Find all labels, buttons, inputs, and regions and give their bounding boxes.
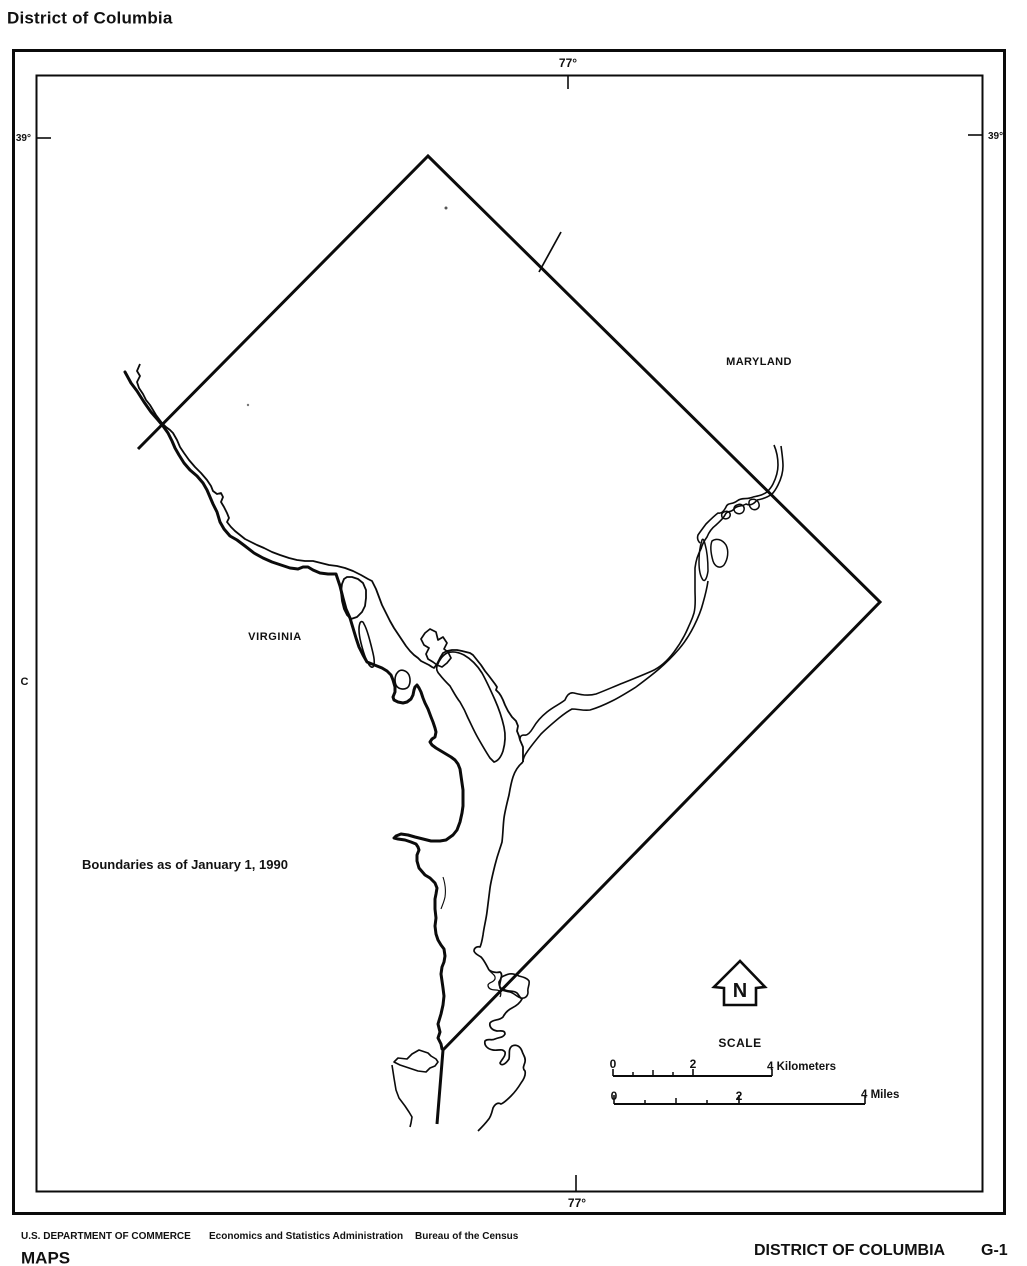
svg-text:0: 0 — [610, 1057, 617, 1071]
svg-text:39°: 39° — [988, 131, 1003, 142]
svg-text:0: 0 — [611, 1089, 618, 1103]
svg-text:39°: 39° — [16, 133, 31, 144]
svg-text:2: 2 — [690, 1057, 697, 1071]
svg-text:DISTRICT OF COLUMBIA: DISTRICT OF COLUMBIA — [754, 1242, 946, 1259]
svg-text:U.S. DEPARTMENT OF COMMERCE: U.S. DEPARTMENT OF COMMERCE — [21, 1231, 191, 1242]
svg-text:77°: 77° — [568, 1196, 586, 1210]
svg-text:VIRGINIA: VIRGINIA — [248, 631, 302, 643]
svg-text:C: C — [21, 676, 29, 688]
svg-text:Economics and Statistics Admin: Economics and Statistics Administration — [209, 1231, 403, 1242]
svg-text:Bureau of the Census: Bureau of the Census — [415, 1231, 519, 1242]
svg-text:N: N — [733, 980, 747, 1002]
svg-text:MARYLAND: MARYLAND — [726, 356, 792, 368]
svg-text:77°: 77° — [559, 56, 577, 70]
svg-text:4 Kilometers: 4 Kilometers — [767, 1061, 836, 1073]
svg-text:SCALE: SCALE — [718, 1036, 761, 1050]
svg-text:2: 2 — [736, 1089, 743, 1103]
svg-text:4 Miles: 4 Miles — [861, 1089, 899, 1101]
svg-text:MAPS: MAPS — [21, 1249, 70, 1266]
svg-text:Boundaries as of January 1, 19: Boundaries as of January 1, 1990 — [82, 857, 288, 872]
svg-text:G-1: G-1 — [981, 1242, 1008, 1259]
svg-text:District of Columbia: District of Columbia — [7, 9, 173, 28]
